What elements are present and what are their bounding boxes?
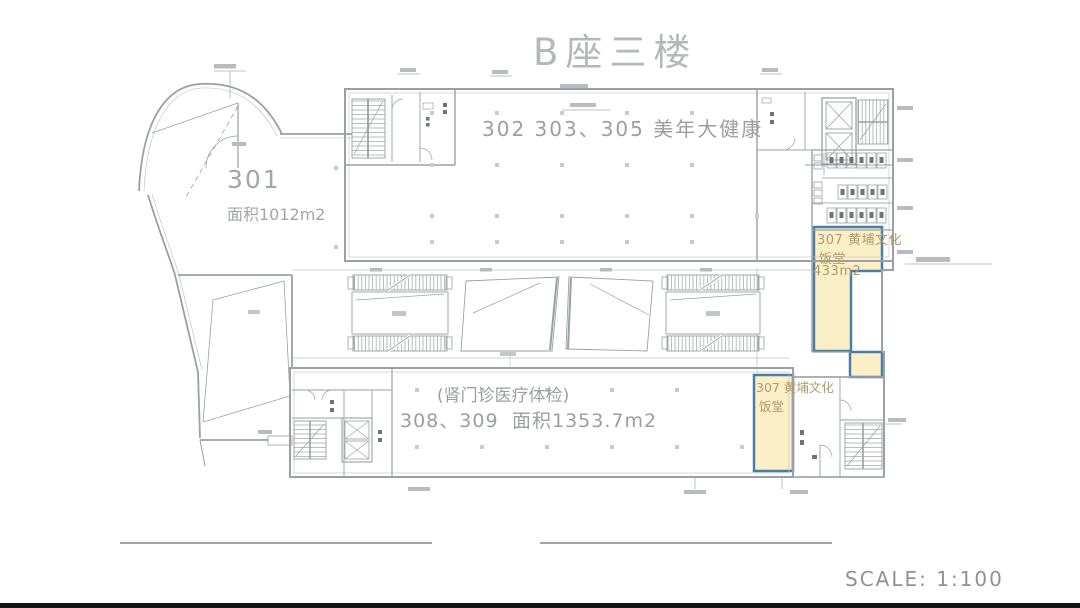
unit-307-south-title: 307 黄埔文化	[756, 377, 834, 396]
sinks	[814, 155, 822, 204]
escalator-west	[348, 275, 452, 351]
atrium-voids	[461, 277, 653, 366]
unit-301-region	[139, 84, 352, 466]
unit-302-label: 302 303、305 美年大健康	[482, 113, 763, 142]
unit-307-south-type: 饭堂	[759, 396, 784, 415]
unit-301-area: 面积1012m2	[227, 201, 326, 225]
floor-plan-page: B座三楼 302 303、305 美年大健康 301 面积1012m2 (肾门诊…	[0, 0, 1080, 608]
unit-308-note: (肾门诊医疗体检)	[437, 381, 569, 406]
unit-307-north-title: 307 黄埔文化	[817, 229, 902, 248]
floorplan-drawing	[0, 0, 1080, 608]
unit-301-number: 301	[227, 165, 281, 194]
stairwell-southwest	[292, 368, 392, 477]
bottom-border-bar	[0, 603, 1080, 608]
page-title: B座三楼	[533, 22, 697, 76]
elevator-cars	[826, 102, 852, 160]
stairwell-northwest	[345, 89, 455, 165]
escalator-east	[662, 275, 764, 351]
unit-307-annex-region	[850, 352, 882, 377]
unit-308-rooms: 308、309	[400, 406, 499, 433]
unit-308-area: 面积1353.7m2	[512, 406, 657, 433]
unit-307-north-area: 433m2	[813, 264, 861, 279]
scale-label: SCALE: 1:100	[845, 567, 1004, 591]
elevator-lobby-northeast	[762, 92, 893, 165]
